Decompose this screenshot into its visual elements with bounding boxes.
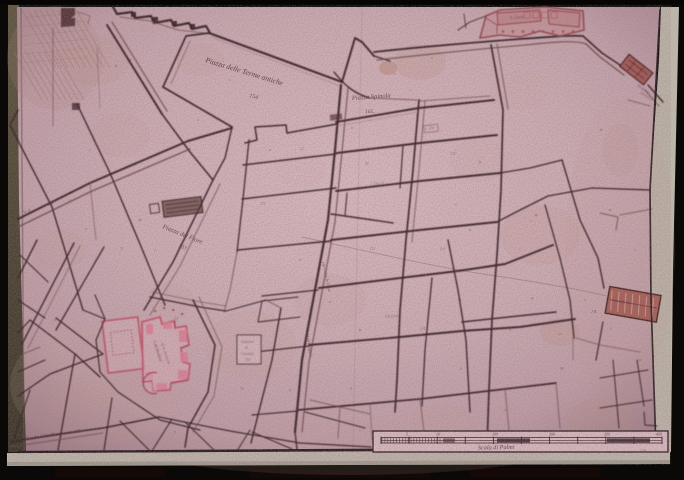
svg-text:96: 96 — [365, 162, 369, 166]
svg-text:99: 99 — [560, 367, 564, 371]
svg-text:8: 8 — [350, 387, 352, 391]
svg-text:76: 76 — [240, 387, 244, 391]
svg-text:112: 112 — [370, 247, 375, 251]
svg-text:101: 101 — [420, 327, 426, 331]
svg-text:12: 12 — [300, 147, 304, 151]
svg-text:6: 6 — [460, 367, 462, 371]
svg-text:a: a — [455, 202, 457, 206]
svg-text:133: 133 — [450, 152, 456, 156]
svg-text:S.A: S.A — [440, 247, 446, 251]
svg-text:a: a — [85, 227, 87, 231]
svg-text:78: 78 — [530, 297, 534, 301]
svg-text:31: 31 — [120, 247, 124, 251]
svg-text:113: 113 — [260, 202, 265, 206]
